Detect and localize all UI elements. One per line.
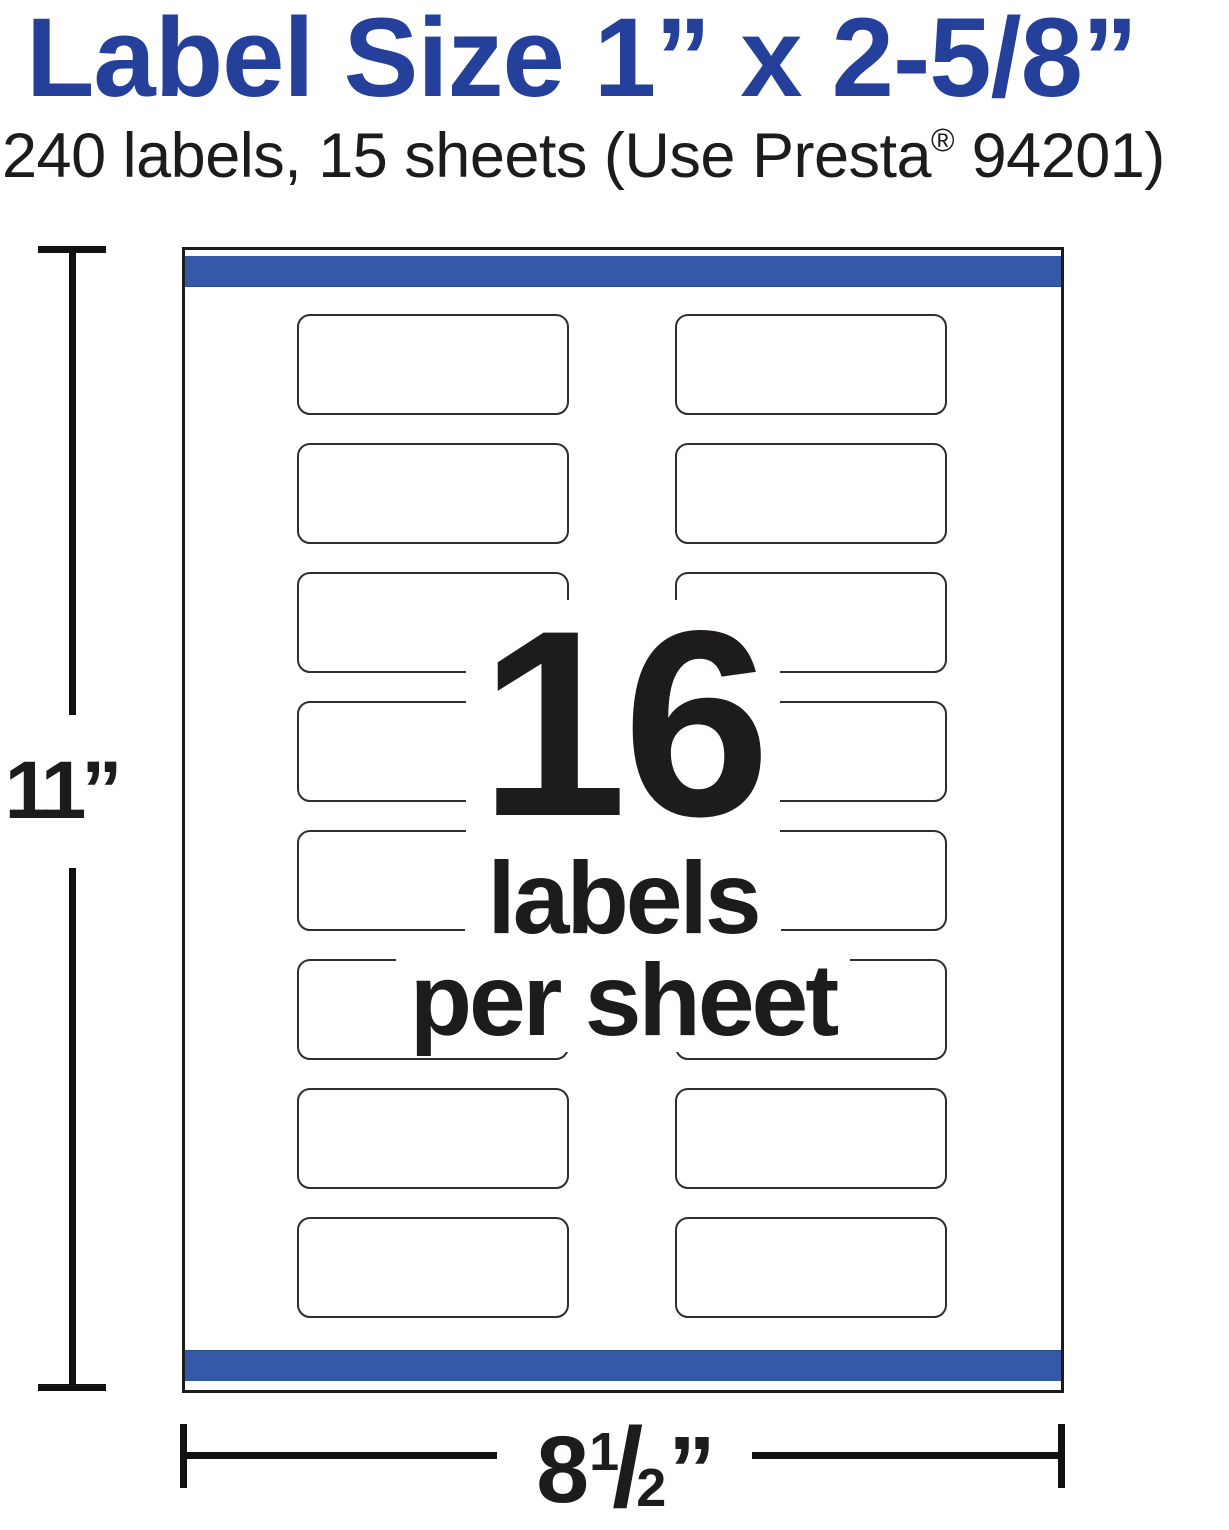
label-sheet: 16 labels per sheet <box>182 247 1064 1393</box>
labels-grid <box>185 250 1061 1390</box>
label-cell <box>297 830 569 931</box>
page-title: Label Size 1” x 2-5/8” <box>26 2 1137 114</box>
width-dimension-label: 81/2” <box>505 1408 745 1520</box>
width-dimension-right-line <box>752 1452 1060 1459</box>
label-cell <box>297 443 569 544</box>
label-cell <box>675 1088 947 1189</box>
subtitle-text-prefix: 240 labels, 15 sheets (Use Presta <box>2 121 931 191</box>
height-dimension-bottom-cap <box>38 1384 106 1391</box>
height-dimension-lower-line <box>69 868 76 1388</box>
width-fraction-denominator: 2 <box>636 1458 666 1518</box>
height-dimension-upper-line <box>69 251 76 715</box>
label-cell <box>297 1217 569 1318</box>
width-whole-number: 8 <box>536 1417 587 1523</box>
subtitle-text-suffix: 94201) <box>955 121 1165 191</box>
label-cell <box>675 959 947 1060</box>
registered-mark: ® <box>931 122 955 158</box>
label-cell <box>297 314 569 415</box>
width-dimension-right-cap <box>1058 1424 1065 1488</box>
label-cell <box>675 314 947 415</box>
label-cell <box>675 443 947 544</box>
label-cell <box>297 959 569 1060</box>
height-dimension-label: 11” <box>0 750 122 832</box>
width-dimension-left-cap <box>180 1424 187 1488</box>
label-cell <box>297 1088 569 1189</box>
width-dimension-left-line <box>187 1452 497 1459</box>
label-cell <box>297 572 569 673</box>
width-inch-mark: ” <box>668 1417 714 1523</box>
label-cell <box>297 701 569 802</box>
subtitle: 240 labels, 15 sheets (Use Presta® 94201… <box>2 124 1229 188</box>
label-cell <box>675 1217 947 1318</box>
label-cell <box>675 701 947 802</box>
label-cell <box>675 572 947 673</box>
label-cell <box>675 830 947 931</box>
